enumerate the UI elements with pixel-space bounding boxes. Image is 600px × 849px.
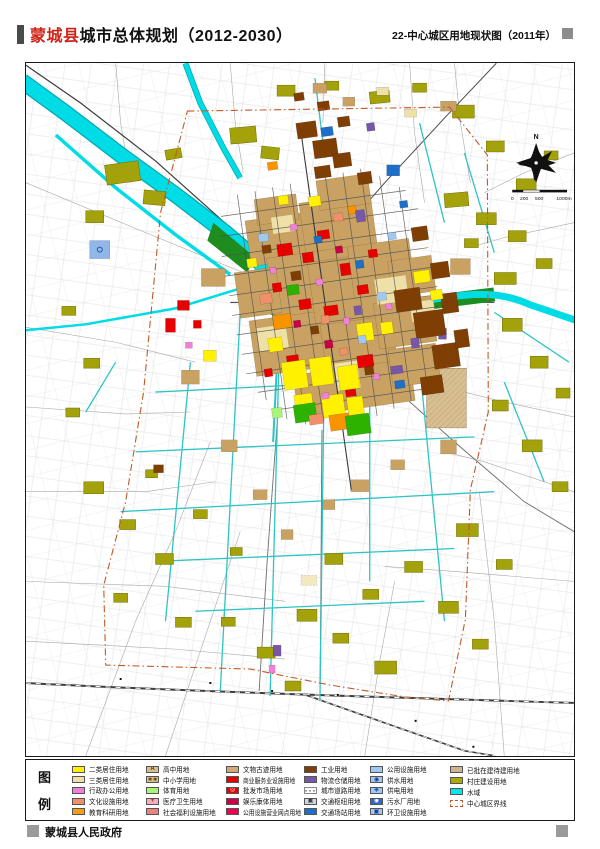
legend-swatch: [450, 788, 463, 795]
legend-column: 公用设施用地◉供水用地◈供电用地◉污水厂用地▣环卫设施用地: [370, 764, 450, 817]
legend-item: 文化设施用地: [72, 796, 146, 807]
page-title: 蒙城县城市总体规划（2012-2030）: [30, 22, 293, 46]
legend-label: 二类居住用地: [89, 764, 129, 774]
legend-swatch: [450, 800, 463, 807]
legend-label: 中心城区界线: [467, 798, 507, 808]
legend-column: 二类居住用地三类居住用地行政办公用地文化设施用地教育科研用地: [72, 764, 146, 817]
plan-sheet: 蒙城县城市总体规划（2012-2030） 22-中心城区用地现状图（2011年）: [0, 0, 600, 849]
legend-label: 物流仓储用地: [321, 775, 361, 785]
legend-label: 交通枢纽用地: [321, 796, 361, 806]
scale-bar: 0 200 500 1000m: [511, 190, 572, 202]
legend-label: 城市道路用地: [321, 785, 361, 795]
legend-label: 供电用地: [387, 785, 413, 795]
legend-swatch: [304, 766, 317, 773]
legend-item: 二类居住用地: [72, 764, 146, 775]
legend-swatch: [226, 798, 239, 805]
title-main: 城市总体规划（2012-2030）: [80, 28, 293, 45]
legend-swatch: [72, 808, 85, 815]
legend-column: A高中用地∗∗中小学用地体育用地+医疗卫生用地社会福利设施用地: [146, 764, 226, 817]
legend-swatch: ▣: [370, 808, 383, 815]
legend-title-bottom: 例: [38, 794, 68, 813]
legend-label: 行政办公用地: [89, 785, 129, 795]
legend-column: 工业用地物流仓储用地城市道路用地▣交通枢纽用地交通场站用地: [304, 764, 370, 817]
legend-swatch: ◉: [370, 798, 383, 805]
legend-label: 中小学用地: [163, 775, 196, 785]
legend-swatch: +: [146, 798, 159, 805]
legend-item: 商业服务业设施用地: [226, 775, 304, 786]
legend-item: 交通场站用地: [304, 806, 370, 817]
legend-swatch: [450, 766, 463, 773]
legend-label: 污水厂用地: [387, 796, 420, 806]
legend-item: 已批在建待建用地: [450, 764, 570, 775]
legend-item: ◎批发市场用地: [226, 785, 304, 796]
legend-item: ▣环卫设施用地: [370, 806, 450, 817]
legend-swatch: [72, 776, 85, 783]
legend-label: 文化设施用地: [89, 796, 129, 806]
legend-label: 商业服务业设施用地: [243, 775, 295, 785]
svg-text:200: 200: [520, 196, 529, 202]
sheet-subtitle: 22-中心城区用地现状图（2011年）: [392, 28, 556, 43]
map-canvas: N 0 200 500 1000m: [25, 62, 575, 757]
legend-swatch: [226, 776, 239, 783]
legend-item: 行政办公用地: [72, 785, 146, 796]
legend-label: 村庄建设用地: [467, 776, 507, 786]
legend-swatch: [450, 777, 463, 784]
legend-swatch: [72, 798, 85, 805]
legend-swatch: [304, 808, 317, 815]
legend-label: 娱乐康体用地: [243, 796, 283, 806]
legend-swatch: ◉: [370, 776, 383, 783]
legend-swatch: ▣: [304, 798, 317, 805]
legend-label: 环卫设施用地: [387, 807, 427, 817]
legend-item: 中心城区界线: [450, 798, 570, 809]
legend-item: 教育科研用地: [72, 806, 146, 817]
legend-swatch: [146, 787, 159, 794]
legend-item: 水域: [450, 786, 570, 797]
legend-swatch: [226, 766, 239, 773]
footer: 蒙城县人民政府: [0, 822, 600, 846]
legend-item: +医疗卫生用地: [146, 796, 226, 807]
legend-item: 公用设施营业网点用地: [226, 806, 304, 817]
footer-right-square-icon: [556, 825, 568, 837]
svg-text:1000m: 1000m: [556, 196, 571, 202]
legend-item: 体育用地: [146, 785, 226, 796]
footer-left-square-icon: [27, 825, 39, 837]
legend-label: 教育科研用地: [89, 807, 129, 817]
legend-swatch: [146, 808, 159, 815]
legend-swatch: ◈: [370, 787, 383, 794]
header-left-bar-icon: [17, 25, 24, 44]
legend-item: 社会福利设施用地: [146, 806, 226, 817]
landuse-map: N 0 200 500 1000m: [26, 63, 574, 756]
legend-item: ◉供水用地: [370, 775, 450, 786]
legend-label: 交通场站用地: [321, 807, 361, 817]
legend-label: 已批在建待建用地: [467, 765, 520, 775]
legend-swatch: A: [146, 766, 159, 773]
legend-swatch: [72, 766, 85, 773]
legend-label: 文物古迹用地: [243, 764, 283, 774]
legend-columns: 二类居住用地三类居住用地行政办公用地文化设施用地教育科研用地A高中用地∗∗中小学…: [68, 760, 574, 820]
legend-swatch: [370, 766, 383, 773]
legend-label: 社会福利设施用地: [163, 807, 216, 817]
legend-swatch: [226, 808, 239, 815]
legend-item: 城市道路用地: [304, 785, 370, 796]
legend-swatch: ∗∗: [146, 776, 159, 783]
svg-text:500: 500: [535, 196, 544, 202]
legend-swatch: ◎: [226, 787, 239, 794]
legend-title: 图 例: [26, 760, 68, 820]
legend-label: 体育用地: [163, 785, 189, 795]
legend-label: 医疗卫生用地: [163, 796, 203, 806]
water-supply-parcel: [90, 241, 110, 259]
legend-label: 公用设施用地: [387, 764, 427, 774]
legend-item: ▣交通枢纽用地: [304, 796, 370, 807]
legend-item: 三类居住用地: [72, 775, 146, 786]
legend-label: 批发市场用地: [243, 785, 283, 795]
svg-text:0: 0: [511, 196, 514, 202]
legend-item: 村庄建设用地: [450, 775, 570, 786]
header: 蒙城县城市总体规划（2012-2030） 22-中心城区用地现状图（2011年）: [0, 0, 600, 56]
legend-label: 供水用地: [387, 775, 413, 785]
legend-label: 三类居住用地: [89, 775, 129, 785]
legend-item: ◉污水厂用地: [370, 796, 450, 807]
legend-title-top: 图: [38, 767, 68, 786]
legend-item: 娱乐康体用地: [226, 796, 304, 807]
legend-item: 工业用地: [304, 764, 370, 775]
legend: 图 例 二类居住用地三类居住用地行政办公用地文化设施用地教育科研用地A高中用地∗…: [25, 759, 575, 821]
legend-label: 公用设施营业网点用地: [243, 807, 301, 817]
legend-swatch: [304, 787, 317, 794]
legend-item: ∗∗中小学用地: [146, 775, 226, 786]
legend-label: 高中用地: [163, 764, 189, 774]
header-right-square-icon: [562, 28, 573, 39]
legend-item: A高中用地: [146, 764, 226, 775]
legend-label: 水域: [467, 787, 480, 797]
legend-item: 文物古迹用地: [226, 764, 304, 775]
svg-text:N: N: [534, 134, 539, 141]
legend-column: 已批在建待建用地村庄建设用地水域中心城区界线: [450, 764, 570, 817]
legend-item: 公用设施用地: [370, 764, 450, 775]
legend-label: 工业用地: [321, 764, 347, 774]
legend-item: ◈供电用地: [370, 785, 450, 796]
legend-item: 物流仓储用地: [304, 775, 370, 786]
legend-column: 文物古迹用地商业服务业设施用地◎批发市场用地娱乐康体用地公用设施营业网点用地: [226, 764, 304, 817]
title-county: 蒙城县: [30, 28, 80, 45]
legend-swatch: [72, 787, 85, 794]
legend-swatch: [304, 776, 317, 783]
footer-text: 蒙城县人民政府: [45, 824, 122, 840]
